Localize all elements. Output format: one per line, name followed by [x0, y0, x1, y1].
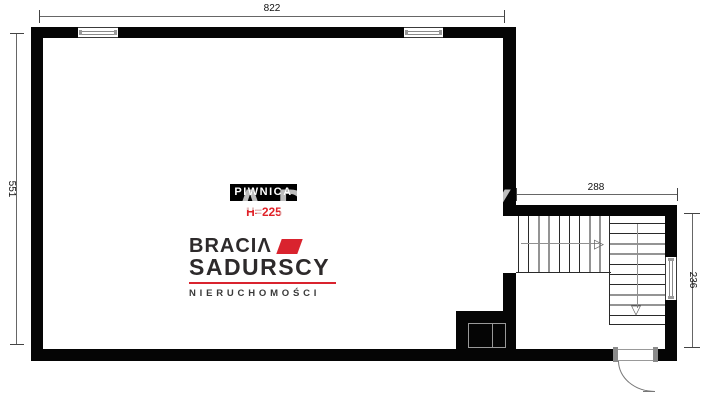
logo-line2-text: SADURSCY: [189, 256, 336, 279]
door-jamb: [653, 347, 658, 362]
dim-label-stair-top: 288: [556, 182, 636, 194]
agency-logo: BRACIΛ SADURSCY NIERUCHOMOŚCI: [189, 236, 336, 299]
logo-red-flag-icon: [276, 239, 302, 254]
window-jamb: [439, 30, 442, 35]
window-jamb: [79, 30, 82, 35]
wall-left: [31, 38, 43, 361]
dim-tick: [39, 10, 40, 23]
chimney-flue-outline: [468, 323, 506, 348]
wall-bottom-segment: [655, 349, 677, 361]
stair-edge: [516, 272, 611, 273]
chimney-flue-divider: [492, 323, 493, 348]
wall-top-segment: [118, 27, 404, 38]
stair-walkline-horizontal: [521, 243, 599, 244]
door-leaf: [643, 391, 655, 392]
dim-tick: [684, 347, 700, 348]
walk-arrow-right-icon: ▷: [594, 237, 604, 250]
window-glass: [407, 31, 440, 35]
door-jamb: [613, 347, 618, 362]
dim-label-top: 822: [232, 3, 312, 15]
logo-red-rule: [189, 282, 336, 284]
window-glass: [81, 31, 115, 35]
dim-tick: [504, 10, 505, 23]
wall-top-segment: [31, 27, 78, 38]
logo-line1-text: BRACIΛ: [189, 236, 272, 256]
window-top-left: [78, 27, 118, 38]
wall-stair-right-segment: [665, 300, 677, 349]
dim-tick: [10, 344, 24, 345]
watermark-text: SADURSCY: [196, 184, 524, 224]
window-stair-right: [665, 257, 677, 300]
dim-line-stair-top: [516, 194, 678, 195]
wall-bottom-segment: [31, 349, 617, 361]
dim-tick: [677, 188, 678, 201]
dim-label-left: 551: [5, 149, 17, 229]
dim-tick: [10, 33, 24, 34]
window-jamb: [668, 258, 674, 261]
wall-top-segment: [443, 27, 516, 38]
door-swing-arc: [618, 361, 655, 392]
dim-tick: [684, 213, 700, 214]
window-jamb: [405, 30, 408, 35]
floor-plan: 822 551 288 236: [0, 0, 710, 405]
wall-stair-top: [516, 205, 677, 216]
logo-line1-row: BRACIΛ: [189, 236, 336, 256]
window-top-right: [404, 27, 443, 38]
wall-stair-right-segment: [665, 216, 677, 257]
stair-edge: [610, 324, 665, 325]
stair-flight-divider: [609, 216, 610, 325]
logo-line3-text: NIERUCHOMOŚCI: [189, 288, 336, 299]
stair-walkline-vertical: [637, 224, 638, 308]
window-jamb: [668, 296, 674, 299]
walk-arrow-down-icon: ▽: [631, 303, 641, 316]
window-jamb: [114, 30, 117, 35]
door-frame-line: [617, 349, 655, 350]
dim-line-top: [39, 16, 505, 17]
dim-label-stair-right: 236: [686, 240, 698, 320]
window-glass: [669, 260, 673, 297]
